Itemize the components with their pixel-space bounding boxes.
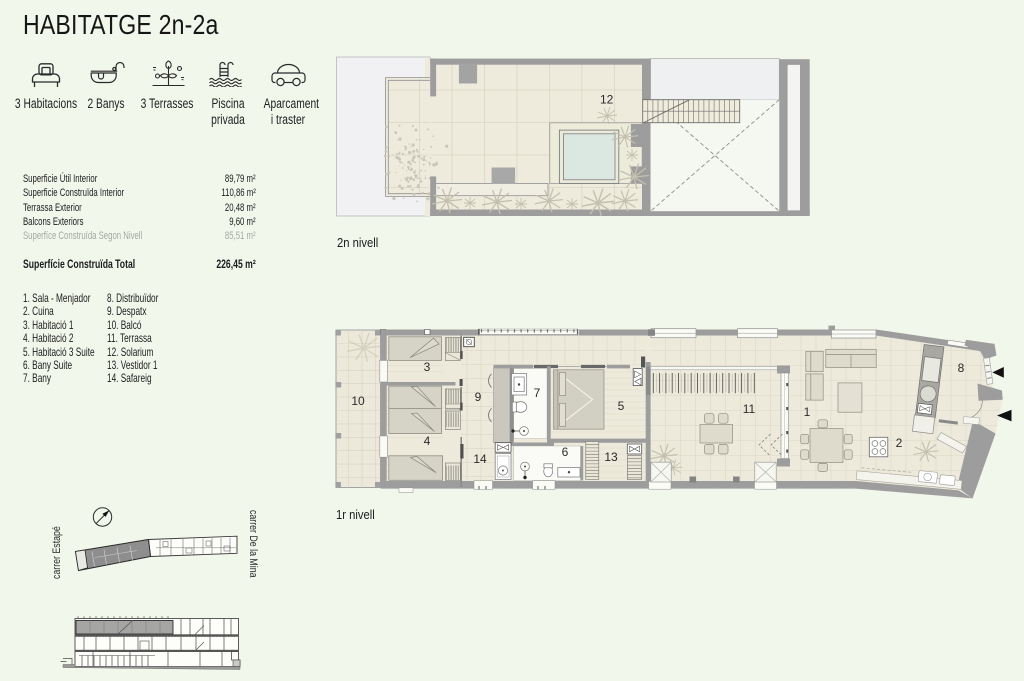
svg-text:7: 7 bbox=[534, 386, 541, 400]
svg-text:6: 6 bbox=[562, 445, 569, 459]
svg-text:4: 4 bbox=[424, 434, 431, 448]
svg-text:11: 11 bbox=[743, 402, 756, 416]
svg-text:1: 1 bbox=[804, 405, 811, 419]
svg-text:2: 2 bbox=[896, 436, 903, 450]
svg-text:9: 9 bbox=[475, 390, 482, 404]
svg-text:14: 14 bbox=[473, 452, 487, 466]
svg-text:3: 3 bbox=[424, 360, 431, 374]
svg-text:10: 10 bbox=[351, 394, 365, 408]
svg-text:13: 13 bbox=[604, 450, 618, 464]
svg-text:5: 5 bbox=[618, 399, 625, 413]
svg-text:12: 12 bbox=[600, 93, 614, 107]
svg-text:8: 8 bbox=[958, 361, 965, 375]
